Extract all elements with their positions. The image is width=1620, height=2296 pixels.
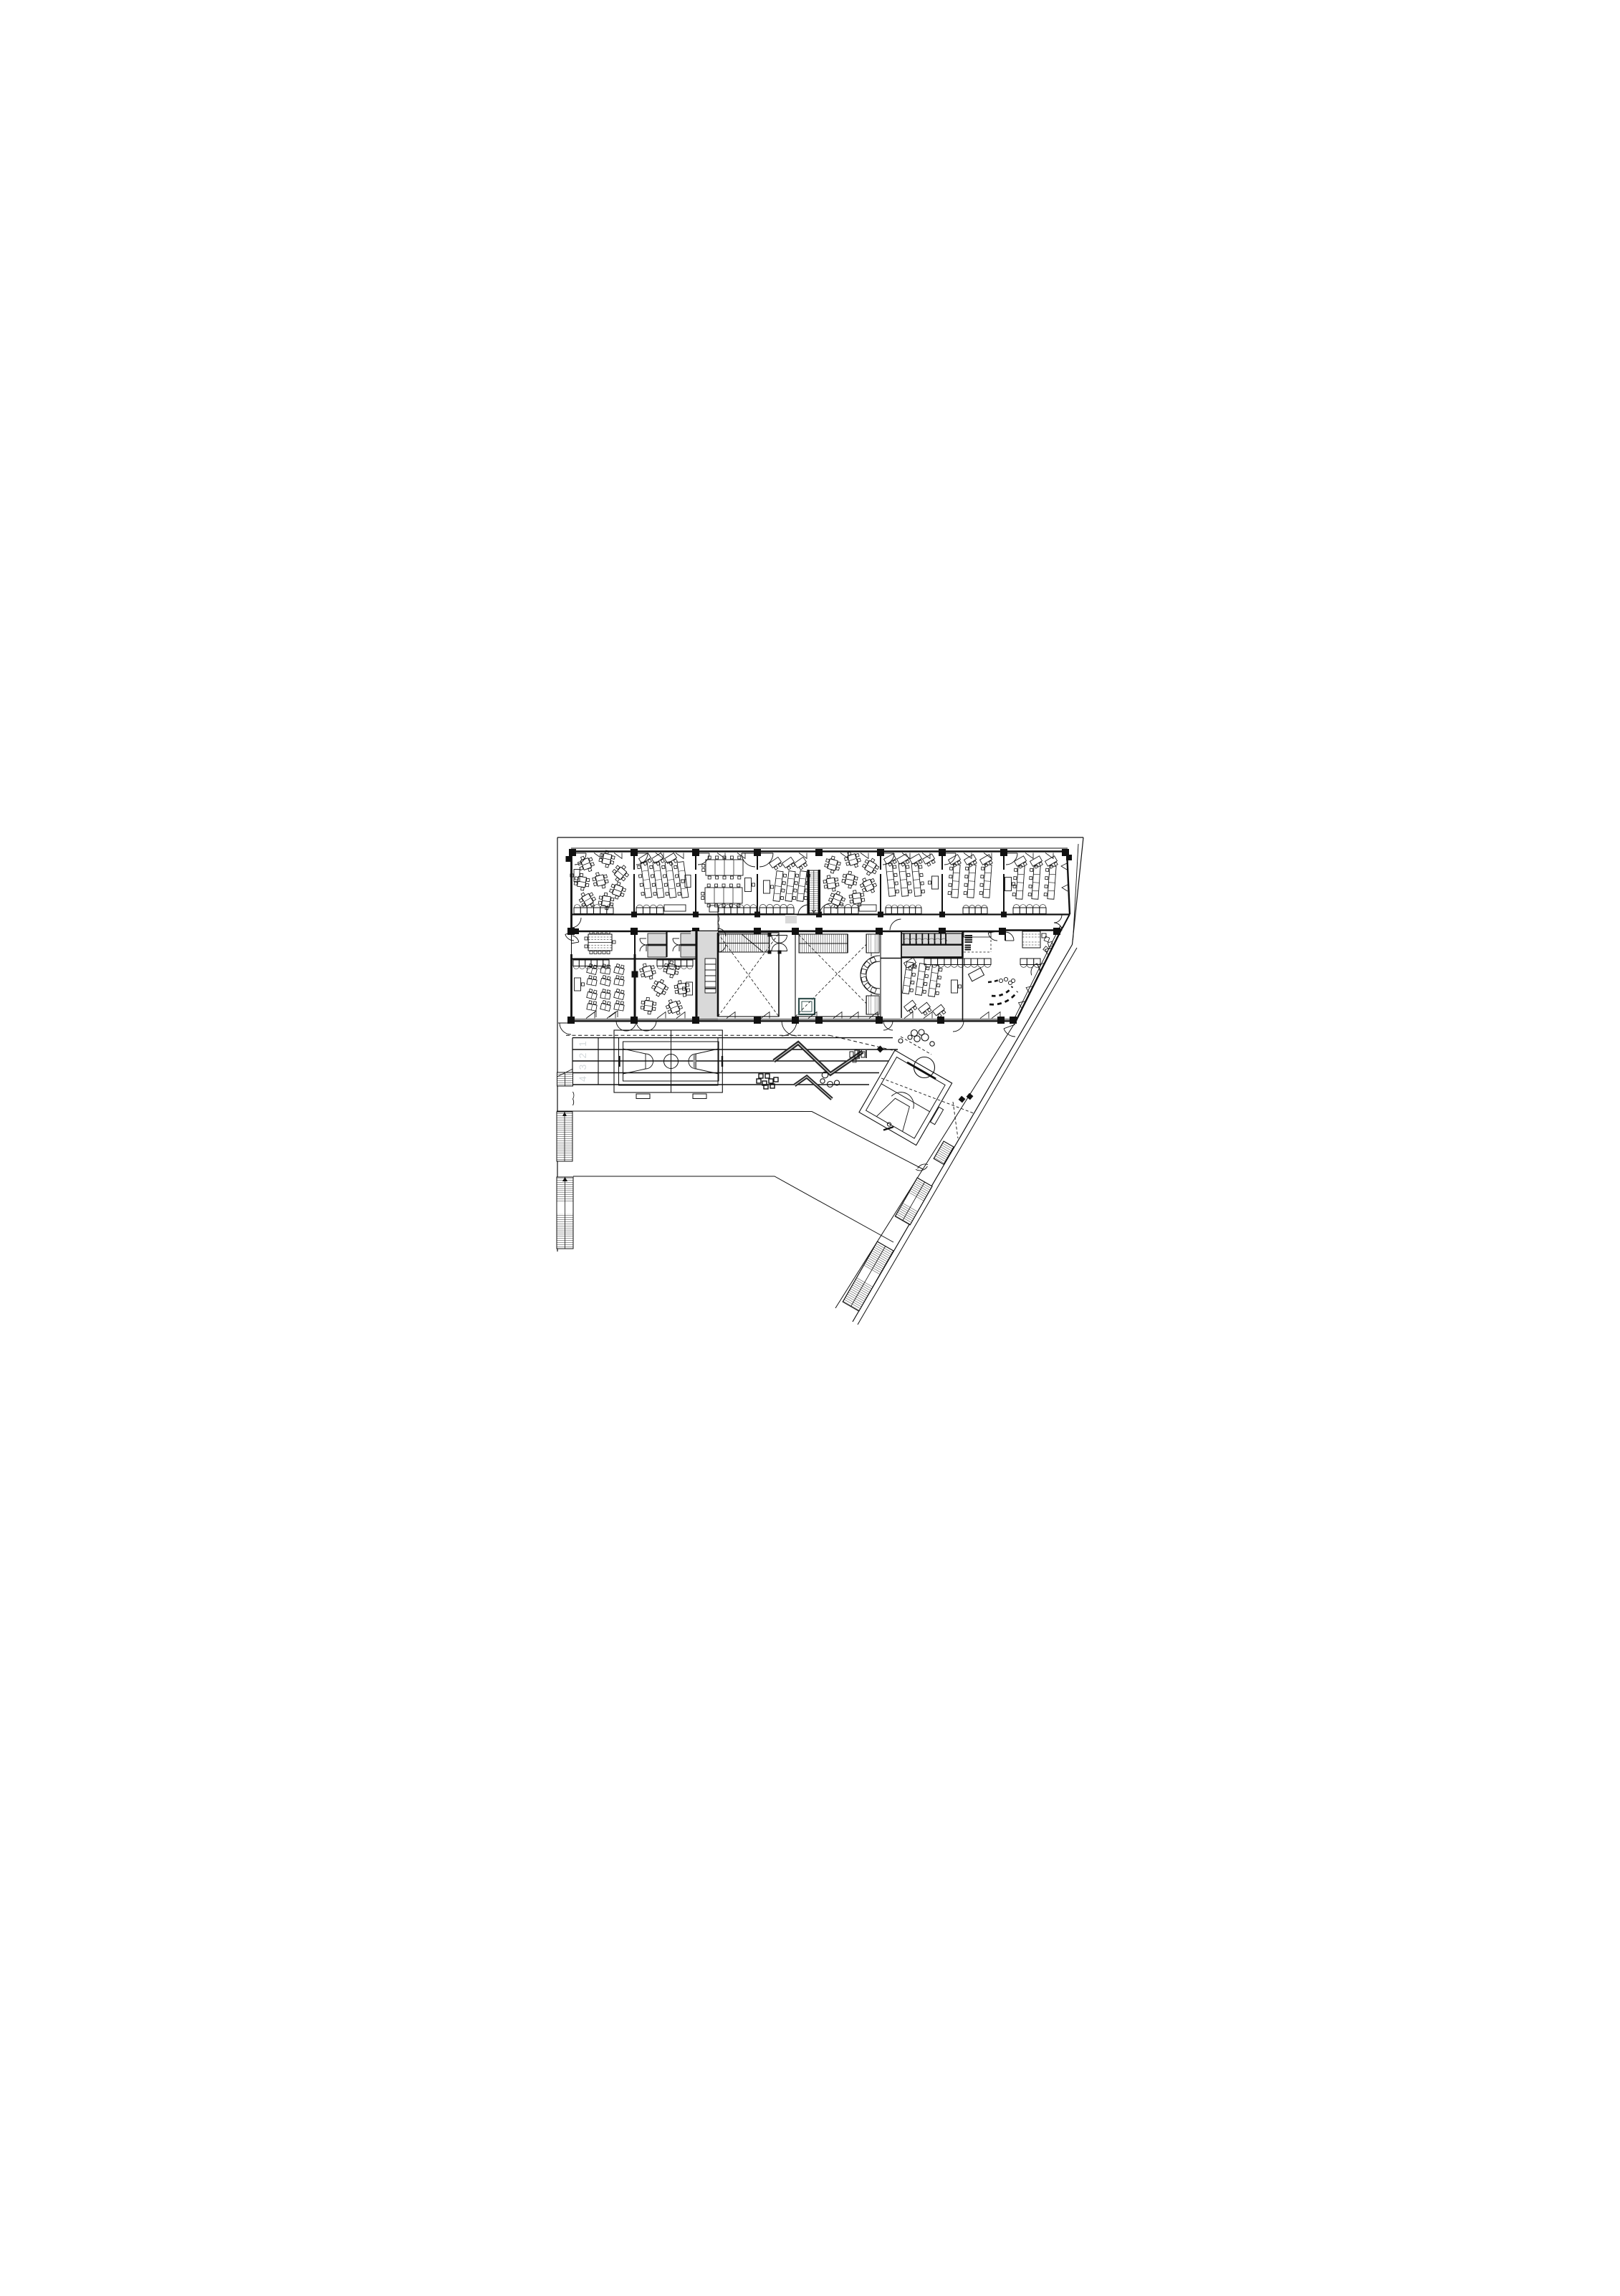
svg-text:3: 3 bbox=[577, 1065, 588, 1070]
svg-text:1: 1 bbox=[577, 1041, 588, 1047]
svg-text:4: 4 bbox=[577, 1076, 588, 1082]
svg-text:2: 2 bbox=[577, 1053, 588, 1059]
